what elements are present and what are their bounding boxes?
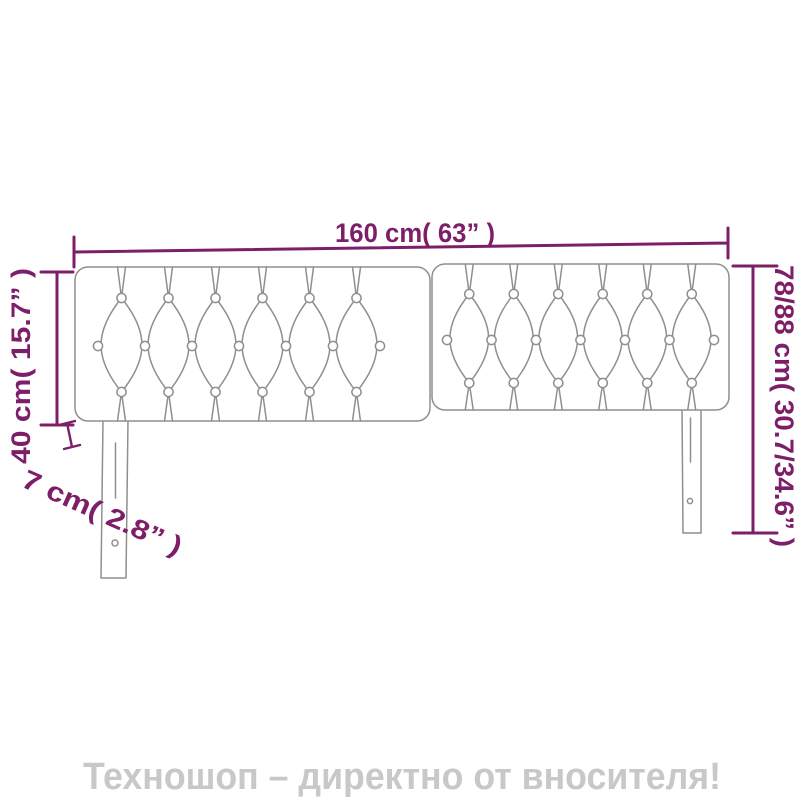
panel-height-dimension-label: 40 cm( 15.7” ) <box>6 268 36 464</box>
height-dimension-label: 78/88 cm( 30.7/34.6” ) <box>769 265 799 547</box>
width-dimension-label: 160 cm( 63” ) <box>335 218 495 248</box>
tufted-panels <box>75 264 729 421</box>
panel-height-dimension-line <box>41 272 73 425</box>
watermark: Техношоп – директно от вносителя! <box>83 756 721 798</box>
product-dimension-diagram: 160 cm( 63” ) 78/88 cm( 30.7/34.6” ) 40 … <box>0 0 800 800</box>
headboard-leg-right <box>682 408 701 533</box>
diagram-svg: 160 cm( 63” ) 78/88 cm( 30.7/34.6” ) 40 … <box>0 0 800 800</box>
